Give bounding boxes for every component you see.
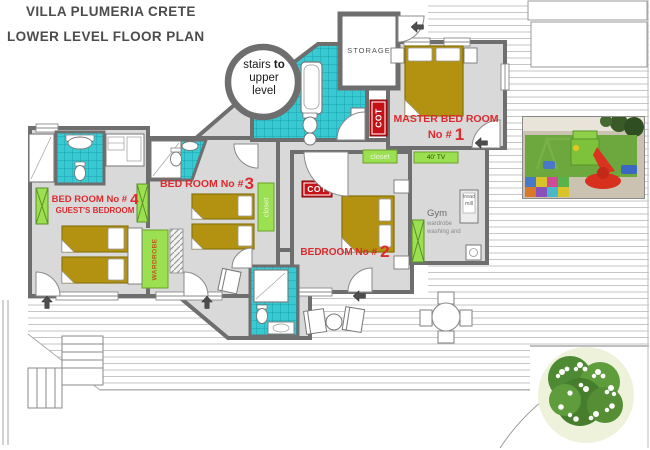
toilet: [75, 166, 86, 181]
armchair: [342, 307, 364, 333]
outdoor-steps: [28, 336, 103, 408]
spiral-stairs: [228, 47, 298, 117]
wardrobe-cabinet: [142, 230, 168, 288]
chair: [438, 292, 454, 304]
playground-photo-art: [523, 117, 644, 198]
pillow: [108, 228, 124, 249]
garden-fence-lines: [3, 300, 8, 445]
sitting-bathroom: [250, 266, 298, 336]
toilet: [257, 309, 268, 324]
pillow: [408, 48, 432, 61]
sink: [68, 137, 92, 149]
sink: [182, 142, 198, 151]
cot-badge-vertical: [370, 100, 387, 136]
tv-stand: [414, 152, 458, 163]
screenshot-root: VILLA PLUMERIA CRETE LOWER LEVEL FLOOR P…: [0, 0, 650, 450]
shelf: [128, 228, 142, 284]
toilet-tank: [171, 148, 181, 152]
nightstand: [464, 48, 477, 63]
closet-x: [137, 184, 148, 222]
pillow: [238, 196, 252, 216]
gym-wardrobe-x: [412, 220, 424, 262]
nightstand: [394, 256, 409, 269]
storage-room: [340, 14, 398, 88]
coffee-table: [326, 314, 342, 330]
closet-x: [36, 188, 48, 224]
armchair: [218, 268, 241, 293]
nightstand: [394, 180, 409, 193]
chair: [438, 331, 454, 343]
playground-photo: [522, 116, 645, 199]
toilet: [303, 117, 317, 133]
chair: [460, 310, 472, 326]
chair: [420, 310, 432, 326]
pillow: [238, 226, 252, 246]
washing-machine: [466, 245, 481, 260]
floor-plan-canvas: [0, 0, 650, 450]
toilet: [171, 152, 182, 166]
dining-table: [432, 303, 460, 331]
closet-cabinet: [258, 183, 274, 231]
pillow: [108, 259, 124, 280]
pillow: [436, 48, 460, 61]
bidet: [304, 133, 316, 145]
closet-cabinet: [363, 150, 397, 163]
hatched-strip: [170, 229, 183, 273]
pillow: [379, 225, 391, 247]
neighbor-structures: [528, 1, 647, 67]
nightstand: [391, 48, 404, 63]
pillow: [379, 199, 391, 221]
armchair: [304, 309, 327, 335]
